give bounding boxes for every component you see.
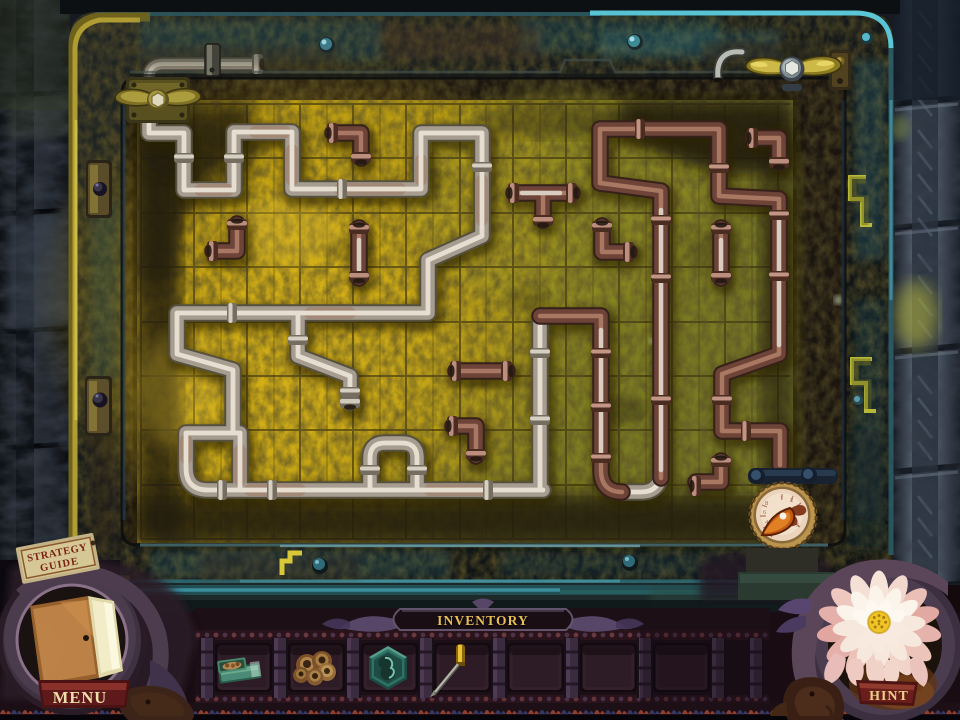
svg-text:HINT: HINT	[869, 689, 909, 704]
svg-text:2: 2	[790, 497, 793, 504]
svg-text:1: 1	[780, 495, 783, 502]
svg-text:INVENTORY: INVENTORY	[437, 613, 529, 628]
svg-text:8: 8	[765, 500, 768, 507]
svg-text:MENU: MENU	[53, 688, 107, 707]
